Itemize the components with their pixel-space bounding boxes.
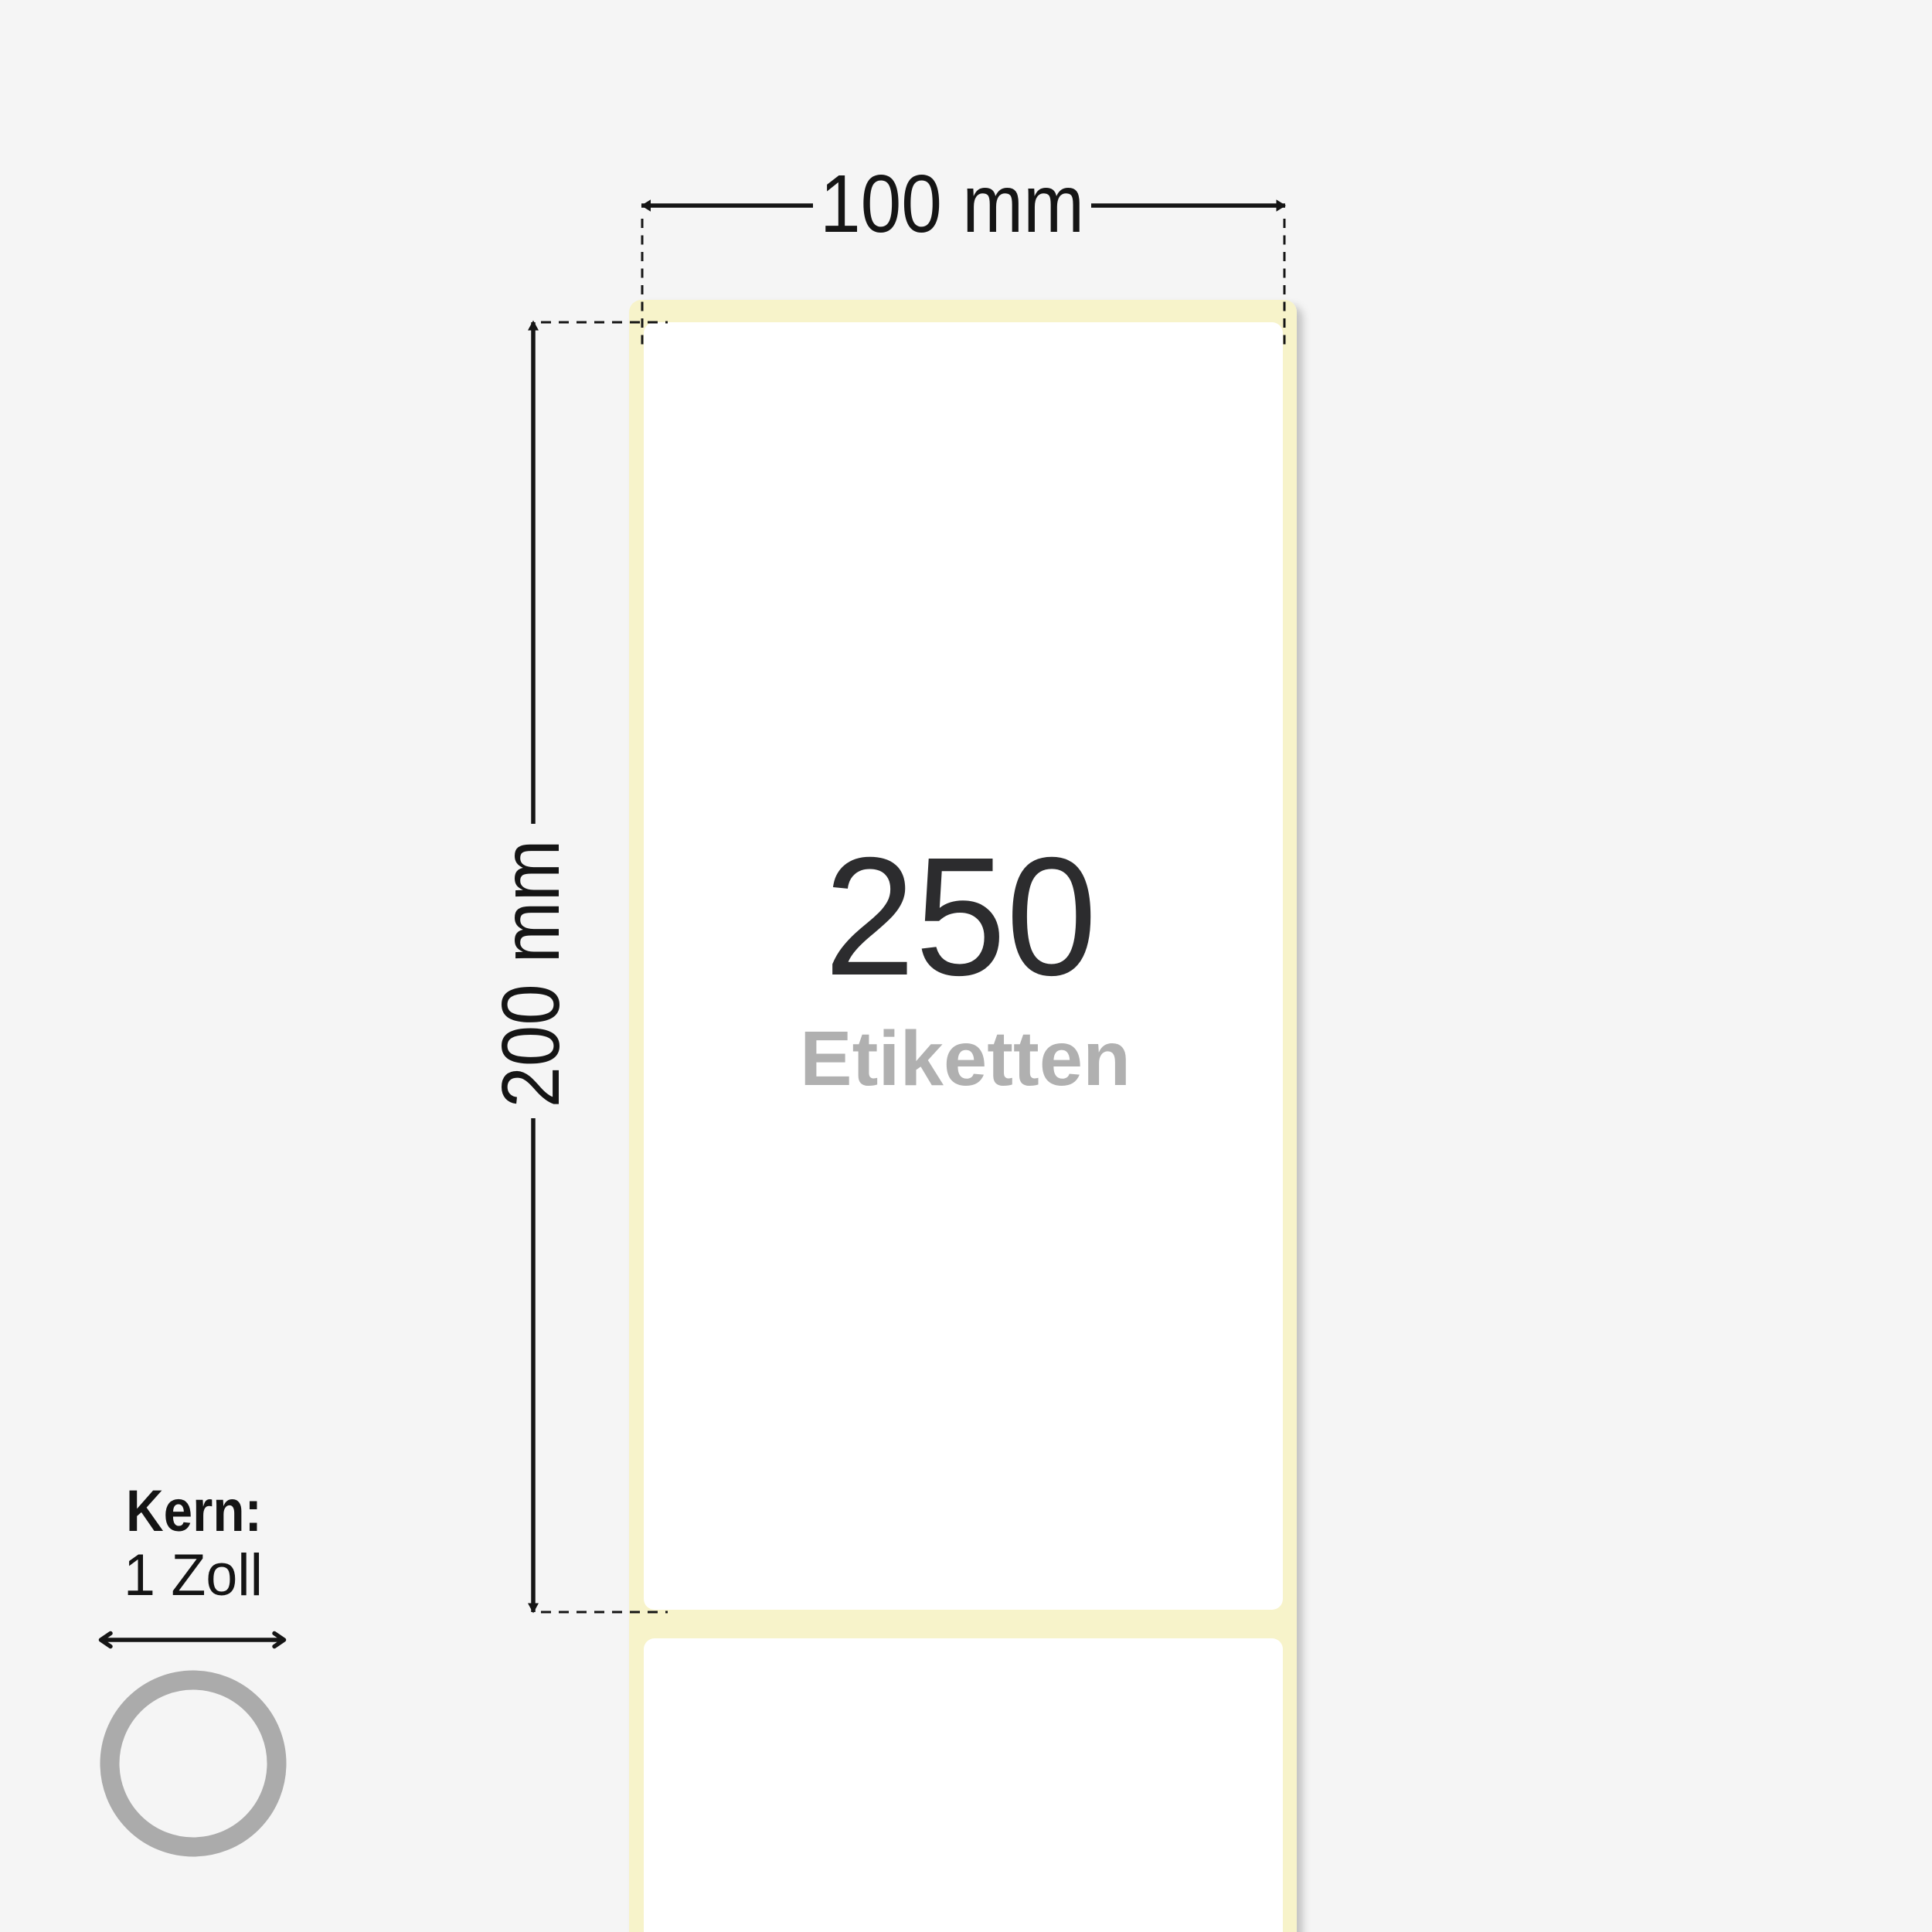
svg-text:1 Zoll: 1 Zoll bbox=[124, 1543, 263, 1608]
svg-text:200 mm: 200 mm bbox=[485, 840, 577, 1108]
svg-text:100 mm: 100 mm bbox=[820, 158, 1084, 250]
svg-text:250: 250 bbox=[825, 823, 1097, 1011]
svg-text:Kern:: Kern: bbox=[126, 1478, 262, 1544]
svg-text:Etiketten: Etiketten bbox=[800, 1015, 1131, 1102]
